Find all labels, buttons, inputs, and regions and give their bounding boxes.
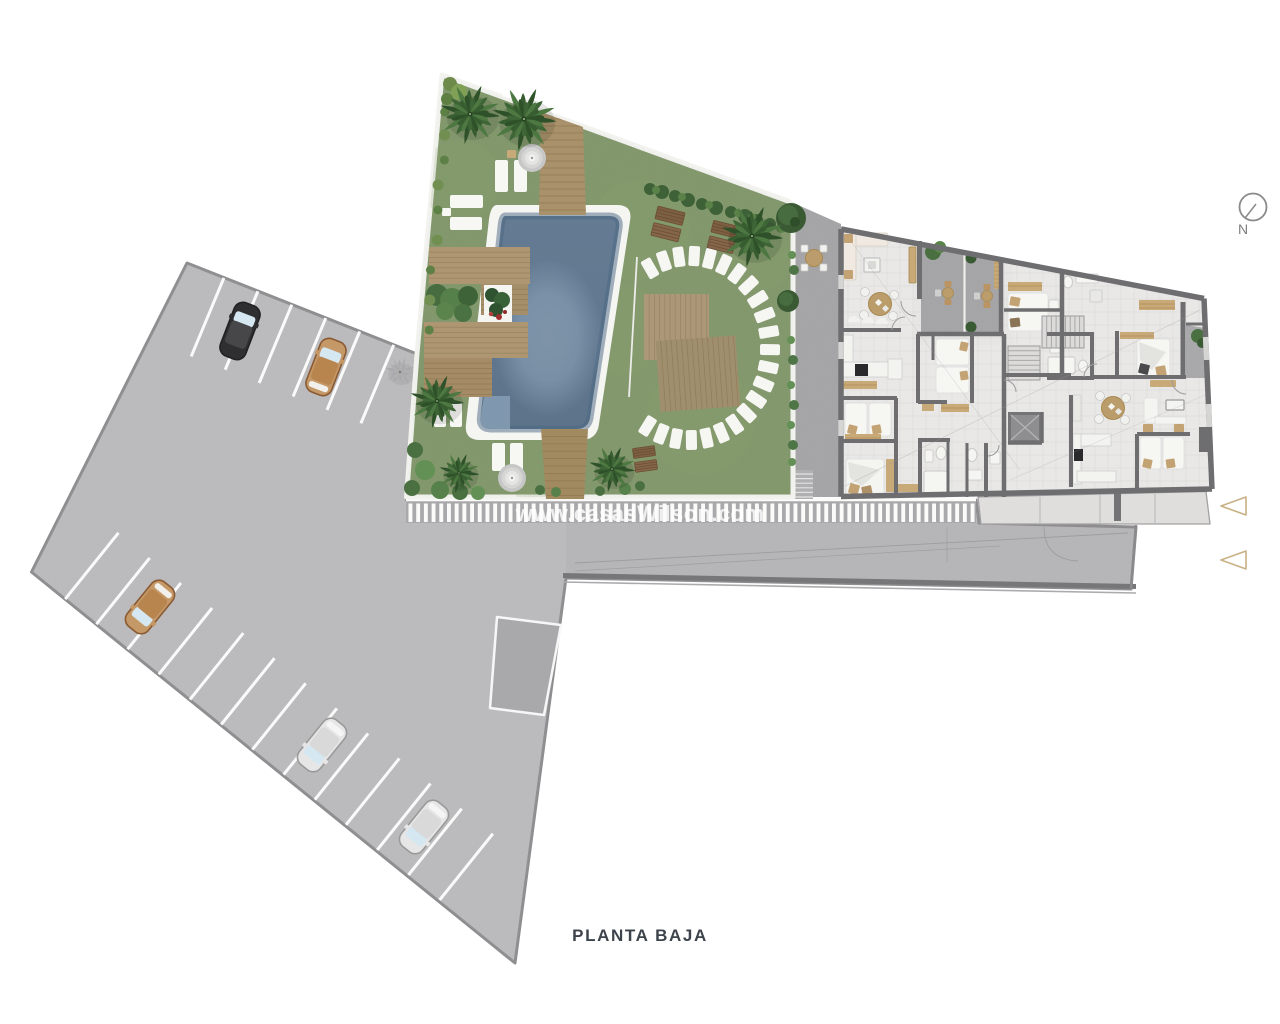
svg-text:N: N: [1238, 221, 1248, 237]
svg-text:PLANTA BAJA: PLANTA BAJA: [572, 926, 708, 945]
svg-text:www.casasWilson.com: www.casasWilson.com: [515, 501, 765, 526]
